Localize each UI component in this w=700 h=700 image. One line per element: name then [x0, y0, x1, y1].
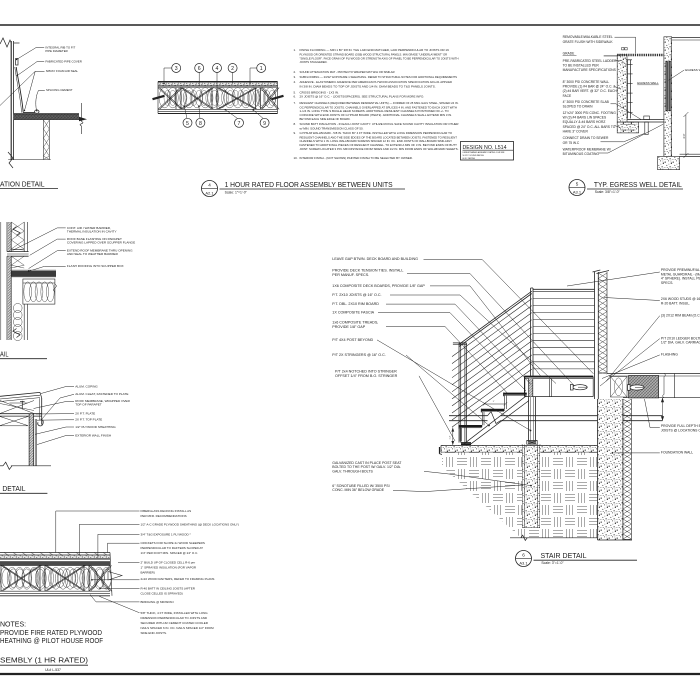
svg-text:1'-4": 1'-4" [450, 435, 452, 439]
svg-text:FLASHING: FLASHING [661, 353, 678, 357]
svg-text:4: 4 [216, 66, 219, 72]
svg-text:TOP OF PARAPET: TOP OF PARAPET [75, 403, 102, 407]
svg-text:SPECS.: SPECS. [661, 281, 673, 285]
svg-text:2x10 WOOD RAFTERS, REFER TO FR: 2x10 WOOD RAFTERS, REFER TO FRAMING PLAN… [141, 577, 215, 581]
svg-text:SOUND ATTENUATION MAT - PROTEC: SOUND ATTENUATION MAT - PROTECTO WRAPER … [300, 70, 395, 74]
svg-text:AND SEAL TO WEATHER BARRIER: AND SEAL TO WEATHER BARRIER [67, 252, 119, 256]
svg-text:GRATE FLUSH WITH SIDEWALK: GRATE FLUSH WITH SIDEWALK [563, 40, 614, 44]
svg-text:A2.1: A2.1 [205, 190, 214, 195]
svg-text:EGRESS WELL: EGRESS WELL [685, 68, 700, 72]
svg-text:PER MANUF. SPECS.: PER MANUF. SPECS. [332, 273, 369, 277]
svg-text:FABRICATED PIPE COVER: FABRICATED PIPE COVER [45, 60, 81, 64]
svg-text:BEYOND EACH SIDE EDGE OF BOARD: BEYOND EACH SIDE EDGE OF BOARD. [300, 117, 351, 121]
svg-text:FOUNDATION WALL: FOUNDATION WALL [661, 451, 693, 455]
svg-text:CONC. MIN 36" BELOW GRADE: CONC. MIN 36" BELOW GRADE [332, 488, 384, 492]
svg-text:1/2" A-C GRADE PLYWOOD SHEATHI: 1/2" A-C GRADE PLYWOOD SHEATHING (@ DECK… [141, 522, 239, 526]
svg-text:TO BE INSTALLED PER: TO BE INSTALLED PER [563, 64, 600, 68]
svg-text:UL# L-537: UL# L-537 [45, 668, 61, 672]
svg-text:PIPE DIAMETER: PIPE DIAMETER [45, 49, 67, 53]
svg-text:2" BUILD UP OF CLOSED CELL R-6: 2" BUILD UP OF CLOSED CELL R-6 per [141, 560, 196, 564]
svg-text:CLOSE CELLED IS SPRAYED): CLOSE CELLED IS SPRAYED) [141, 591, 183, 595]
svg-text:SLOPED TO DRAIN: SLOPED TO DRAIN [563, 105, 594, 109]
svg-text:2: 2 [231, 66, 234, 72]
svg-text:JOINTS STAGGERED.: JOINTS STAGGERED. [300, 60, 328, 64]
svg-text:1/4" PER FOOT MIN. SPACED @ 24: 1/4" PER FOOT MIN. SPACED @ 24" O.C. [141, 551, 199, 555]
svg-text:COVERING LAPPED OVER SCUPPER F: COVERING LAPPED OVER SCUPPER FLANGE [67, 241, 135, 245]
svg-text:1 HOUR RATED FLOOR ASSEMBLY BE: 1 HOUR RATED FLOOR ASSEMBLY BETWEEN UNIT… [225, 180, 393, 189]
svg-text:FIBERGLASS DECKING INSTALL AS: FIBERGLASS DECKING INSTALL AS [141, 509, 192, 513]
svg-text:OR 75 W.C: OR 75 W.C [563, 141, 580, 145]
svg-text:GALV. THROUGH BOLTS: GALV. THROUGH BOLTS [332, 470, 373, 474]
svg-text:4'-0": 4'-0" [682, 133, 686, 138]
svg-text:8.: 8. [294, 122, 297, 126]
svg-text:TYP. EGRESS WELL DETAIL: TYP. EGRESS WELL DETAIL [594, 180, 682, 189]
svg-text:2X P.T. TOP PLATE: 2X P.T. TOP PLATE [75, 418, 102, 422]
svg-text:FLASH ROOFING INTO SCUPPER BOX: FLASH ROOFING INTO SCUPPER BOX [67, 264, 124, 268]
svg-text:STAIR DETAIL: STAIR DETAIL [541, 551, 587, 560]
svg-text:Scale: 1"=1'-0": Scale: 1"=1'-0" [225, 190, 248, 194]
svg-text:1: 1 [260, 66, 263, 72]
svg-text:7.: 7. [294, 101, 297, 105]
svg-text:NAILS SPACED 6 IN. OC. NAILS S: NAILS SPACED 6 IN. OC. NAILS SPACED 1/2"… [141, 626, 215, 630]
svg-text:NOTES:: NOTES: [0, 622, 26, 629]
svg-text:AIL: AIL [0, 350, 9, 359]
svg-text:10.: 10. [294, 156, 298, 160]
svg-text:BARRIER): BARRIER) [141, 571, 155, 575]
svg-text:8: 8 [199, 121, 202, 127]
svg-text:(3) 2X12 RIM BEAM (O.C.): (3) 2X12 RIM BEAM (O.C.) [661, 314, 700, 318]
svg-text:1/2" DIA. GALV. CARRIAGE BOLTS: 1/2" DIA. GALV. CARRIAGE BOLTS [661, 341, 700, 345]
svg-text:OFFSET 1/4" FROM B.O. STRINGER: OFFSET 1/4" FROM B.O. STRINGER [335, 374, 398, 378]
svg-text:CONNECT DRAIN TO SEWER: CONNECT DRAIN TO SEWER [563, 136, 609, 140]
svg-text:HEATHING @ PILOT HOUSE ROOF: HEATHING @ PILOT HOUSE ROOF [0, 638, 103, 645]
svg-text:PER MFR. RECOMMENDATIONS: PER MFR. RECOMMENDATIONS [141, 514, 187, 518]
svg-text:(2) #4 BAR VERT. @ 32" O.C. EA: (2) #4 BAR VERT. @ 32" O.C. EACH [563, 89, 618, 93]
svg-text:SUBFLOORING — 23/32" EXPOSURE: SUBFLOORING — 23/32" EXPOSURE 1 SHEATHIN… [300, 75, 457, 79]
svg-text:4: 4 [208, 183, 211, 188]
svg-text:P/T 2X STRINGERS @ 16" O.C.: P/T 2X STRINGERS @ 16" O.C. [332, 353, 386, 357]
svg-text:2X JOISTS @ 16" O.C. - (JOISTS: 2X JOISTS @ 16" O.C. - (JOISTS/SPACERS).… [300, 94, 425, 98]
svg-text:ALUM. COPING: ALUM. COPING [75, 384, 98, 388]
svg-text:FINISH FLOORING — MIN 1 BY 3/8: FINISH FLOORING — MIN 1 BY 3/8 IN. T&G L… [300, 48, 450, 52]
svg-text:9.: 9. [294, 131, 297, 135]
svg-text:8" 3000 PSI CONCRETE WALL: 8" 3000 PSI CONCRETE WALL [563, 80, 610, 84]
svg-text:EQUALLY & #4 BARS HORZ: EQUALLY & #4 BARS HORZ [563, 120, 606, 124]
svg-text:FACE: FACE [563, 94, 572, 98]
svg-text:ATION DETAIL: ATION DETAIL [0, 180, 45, 189]
svg-text:Scale: 3"=1'-0": Scale: 3"=1'-0" [541, 561, 564, 565]
svg-text:W/ (3) #4 BARS LIN SPACES: W/ (3) #4 BARS LIN SPACES [563, 116, 607, 120]
svg-text:P.T. 2X10 JOISTS @ 16" O.C.: P.T. 2X10 JOISTS @ 16" O.C. [332, 293, 381, 297]
svg-text:1X6 COMPOSITE DECK BOARDS, PRO: 1X6 COMPOSITE DECK BOARDS, PROVIDE 1/8" … [332, 284, 425, 288]
svg-text:1.: 1. [294, 48, 297, 52]
svg-text:PRE-FABRICATED STEEL LADDER: PRE-FABRICATED STEEL LADDER [563, 59, 617, 63]
svg-text:CRICKETS FOR SLOPE 2x WOOD SLE: CRICKETS FOR SLOPE 2x WOOD SLEEPERS [141, 541, 205, 545]
svg-text:A3.1: A3.1 [519, 560, 528, 565]
svg-text:9: 9 [263, 121, 266, 127]
svg-text:3: 3 [175, 66, 178, 72]
svg-text:GRADE: GRADE [563, 52, 576, 56]
svg-text:LEAVE GAP BTWN. DECK BOARD AND: LEAVE GAP BTWN. DECK BOARD AND BUILDING [332, 257, 418, 261]
svg-text:DETAIL: DETAIL [2, 484, 25, 493]
svg-text:SPRAY FOAM AIR SEAL: SPRAY FOAM AIR SEAL [46, 69, 79, 73]
svg-text:6.: 6. [294, 94, 297, 98]
svg-text:SOUND BATT INSULATION - IN EAC: SOUND BATT INSULATION - IN EACH JOIST CA… [300, 122, 459, 126]
svg-text:5: 5 [576, 182, 579, 187]
svg-text:SEMBLY (1 HR RATED): SEMBLY (1 HR RATED) [0, 656, 88, 665]
svg-text:P/T 4X4 POST BEYOND: P/T 4X4 POST BEYOND [332, 338, 373, 342]
svg-text:5/8" THICK, 4 FT WIDE, INSTALL: 5/8" THICK, 4 FT WIDE, INSTALLED WITH LO… [141, 611, 209, 615]
svg-text:EGRESS WELL: EGRESS WELL [637, 81, 659, 85]
svg-text:MANUFACTURE SPECIFICATIONS: MANUFACTURE SPECIFICATIONS [563, 68, 617, 72]
svg-text:4.: 4. [294, 80, 297, 84]
svg-text:R-40 BATT IN CEILING JOISTS (A: R-40 BATT IN CEILING JOISTS (AFTER [141, 586, 196, 590]
svg-text:SPACED @ 24" O.C. ALL BARS TO: SPACED @ 24" O.C. ALL BARS TO [563, 125, 616, 129]
svg-text:SIDE END JOISTS.: SIDE END JOISTS. [141, 631, 168, 635]
svg-text:UNRESTRAINED ASSEMBLY RATING 1: UNRESTRAINED ASSEMBLY RATING 1 HR MIN [463, 151, 505, 154]
svg-text:Scale: 3/8"=1'-0": Scale: 3/8"=1'-0" [595, 190, 621, 194]
svg-text:HAVE 3" COVER: HAVE 3" COVER [563, 129, 589, 133]
svg-text:THERMAL INSULATION IN CAVITY: THERMAL INSULATION IN CAVITY [67, 229, 117, 233]
svg-text:P.T. DBL. 2X10 RIM BOARD: P.T. DBL. 2X10 RIM BOARD [332, 302, 379, 306]
svg-text:SECURED WITH #2 CEMENT COATED: SECURED WITH #2 CEMENT COATED COOLER [141, 621, 209, 625]
svg-text:PROVIDE 1/8" GAP: PROVIDE 1/8" GAP [332, 325, 365, 329]
svg-text:INTERIOR FINISH - (NOT SHOWN): INTERIOR FINISH - (NOT SHOWN) PAINTED FI… [300, 156, 413, 160]
svg-text:60 IIC RATING: 60 IIC RATING [463, 157, 476, 160]
svg-text:6: 6 [198, 66, 201, 72]
svg-text:WATERPROOF MEMBRANE W/: WATERPROOF MEMBRANE W/ [563, 147, 611, 151]
svg-text:R-20 BATT. INSUL.: R-20 BATT. INSUL. [661, 302, 690, 306]
svg-text:1" SPRAYED INSULATION (FOR VAP: 1" SPRAYED INSULATION (FOR VAPOR [141, 565, 197, 569]
svg-text:DIMENSION PERPENDICULAR TO JOI: DIMENSION PERPENDICULAR TO JOISTS AND [141, 616, 208, 620]
svg-text:ALUM. CLEAT, FASTENED TO PLATE: ALUM. CLEAT, FASTENED TO PLATE [75, 392, 128, 396]
svg-text:50 STC SOUND RATING: 50 STC SOUND RATING [463, 154, 485, 157]
svg-text:RESILIENT CHANNELS (REQUIRED B: RESILIENT CHANNELS (REQUIRED BETWEEN RES… [300, 101, 459, 105]
svg-text:IN 3/8 IN. DIAM BEADS TO TOP O: IN 3/8 IN. DIAM BEADS TO TOP OF JOISTS A… [300, 85, 436, 89]
svg-text:2X P.T. PLATE: 2X P.T. PLATE [75, 412, 95, 416]
svg-text:REMOVABLE/WALKABLE STEEL: REMOVABLE/WALKABLE STEEL [563, 35, 613, 39]
svg-text:5: 5 [186, 121, 189, 127]
svg-text:JOINT. SCREW LOCATED 3 P/N. M: JOINT. SCREW LOCATED 3 P/N. MIN DISTANCE… [300, 147, 459, 151]
svg-text:6: 6 [522, 553, 525, 558]
svg-text:GYPSUM WALLBOARD - 5/8 IN. THI: GYPSUM WALLBOARD - 5/8 IN. THICK BY 4 FT… [300, 131, 453, 135]
svg-text:A3.1: A3.1 [573, 189, 582, 194]
svg-text:7: 7 [238, 121, 241, 127]
svg-text:BITUMINOUS COATING: BITUMINOUS COATING [563, 152, 600, 156]
svg-text:4" 3000 PSI CONCRETE SLAB: 4" 3000 PSI CONCRETE SLAB [563, 100, 610, 104]
svg-text:ADHESIVE - ELASTOMERIC ADHESIV: ADHESIVE - ELASTOMERIC ADHESIVE PER AMER… [300, 80, 453, 84]
svg-text:BRIDGING @ MIDSPAN: BRIDGING @ MIDSPAN [141, 600, 174, 604]
svg-text:2.: 2. [294, 70, 297, 74]
svg-text:12"x24" 3000 PSI CONC. FOOTING: 12"x24" 3000 PSI CONC. FOOTING [563, 111, 617, 115]
svg-text:PROVIDE (1) #4 BAR @ 24" O.C.: PROVIDE (1) #4 BAR @ 24" O.C. & [563, 85, 617, 89]
svg-text:1/2" PLYWOOD SHEATHING: 1/2" PLYWOOD SHEATHING [75, 425, 116, 429]
svg-text:EXTERIOR WALL FINISH: EXTERIOR WALL FINISH [75, 433, 111, 437]
svg-text:3.: 3. [294, 75, 297, 79]
svg-text:PROVIDE FIRE RATED PLYWOOD: PROVIDE FIRE RATED PLYWOOD [0, 630, 102, 637]
svg-text:PERPENDICULAR TO RAFTERS SLOPE: PERPENDICULAR TO RAFTERS SLOPED AT [141, 546, 204, 550]
svg-text:3/4" T&G EXPOSURE 1 PLYWOOD *: 3/4" T&G EXPOSURE 1 PLYWOOD * [141, 533, 192, 537]
svg-text:SPLICING CEMENT: SPLICING CEMENT [46, 88, 73, 92]
svg-text:1X COMPOSITE FASCIA: 1X COMPOSITE FASCIA [332, 311, 374, 315]
svg-text:JOISTS @ LOCATIONS OF BOLTS: JOISTS @ LOCATIONS OF BOLTS [661, 428, 700, 432]
